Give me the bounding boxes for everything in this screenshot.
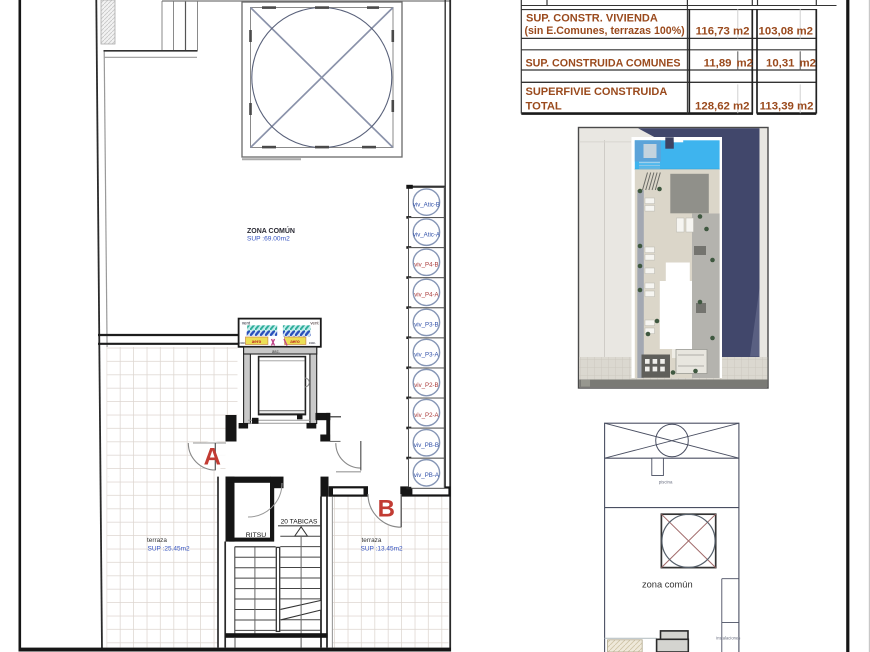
svg-text:viv_PB-B: viv_PB-B bbox=[414, 442, 439, 449]
svg-text:coc.: coc. bbox=[239, 340, 246, 345]
svg-text:vent: vent bbox=[242, 320, 251, 325]
svg-text:viv_PB-A: viv_PB-A bbox=[414, 472, 440, 479]
svg-text:viv_P2-A: viv_P2-A bbox=[414, 412, 439, 419]
svg-text:instalaciones: instalaciones bbox=[716, 636, 740, 641]
svg-text:viv_Atic-A: viv_Atic-A bbox=[413, 231, 441, 238]
svg-text:20 TABICAS: 20 TABICAS bbox=[281, 519, 318, 526]
svg-text:113,39 m2: 113,39 m2 bbox=[760, 101, 814, 113]
svg-text:SUP. CONSTRUIDA COMUNES: SUP. CONSTRUIDA COMUNES bbox=[526, 58, 681, 70]
svg-text:SUP :69.00m2: SUP :69.00m2 bbox=[247, 236, 290, 243]
svg-text:ZONA COMÚN: ZONA COMÚN bbox=[247, 226, 295, 235]
svg-text:viv_P4-B: viv_P4-B bbox=[414, 261, 438, 268]
svg-text:m2: m2 bbox=[737, 58, 753, 70]
svg-text:aero: aero bbox=[290, 339, 300, 344]
svg-text:SUP :25.45m2: SUP :25.45m2 bbox=[148, 546, 191, 553]
svg-text:piscina: piscina bbox=[659, 480, 673, 485]
svg-text:TOTAL: TOTAL bbox=[526, 101, 562, 113]
svg-text:terraza: terraza bbox=[147, 537, 167, 544]
svg-text:(sin E.Comunes, terrazas 100%): (sin E.Comunes, terrazas 100%) bbox=[525, 25, 685, 37]
svg-text:SUPERFIVIE CONSTRUIDA: SUPERFIVIE CONSTRUIDA bbox=[526, 86, 668, 98]
svg-text:viv_Atic-B: viv_Atic-B bbox=[413, 201, 440, 208]
svg-text:11,89: 11,89 bbox=[704, 58, 732, 70]
svg-text:viv_P2-B: viv_P2-B bbox=[414, 382, 438, 389]
svg-text:zona común: zona común bbox=[642, 580, 693, 590]
svg-text:coc.: coc. bbox=[309, 340, 316, 345]
svg-text:viv_P4-A: viv_P4-A bbox=[414, 292, 439, 299]
svg-text:vent: vent bbox=[310, 320, 319, 325]
svg-text:asc.: asc. bbox=[272, 349, 280, 354]
svg-text:SUP :13.45m2: SUP :13.45m2 bbox=[361, 546, 404, 553]
svg-text:RITSU: RITSU bbox=[246, 532, 266, 539]
svg-text:116,73 m2: 116,73 m2 bbox=[696, 26, 750, 38]
svg-text:viv_P3-A: viv_P3-A bbox=[414, 352, 439, 359]
svg-text:m2: m2 bbox=[800, 58, 816, 70]
svg-text:viv_P3-B: viv_P3-B bbox=[414, 322, 438, 329]
svg-text:10,31: 10,31 bbox=[766, 58, 795, 70]
svg-text:103,08 m2: 103,08 m2 bbox=[759, 26, 813, 38]
svg-text:aero: aero bbox=[252, 339, 262, 344]
svg-text:SUP. CONSTR. VIVIENDA: SUP. CONSTR. VIVIENDA bbox=[526, 13, 658, 25]
svg-text:128,62 m2: 128,62 m2 bbox=[695, 101, 749, 113]
svg-text:A: A bbox=[204, 444, 221, 471]
svg-text:B: B bbox=[378, 496, 395, 523]
svg-text:terraza: terraza bbox=[362, 537, 382, 544]
